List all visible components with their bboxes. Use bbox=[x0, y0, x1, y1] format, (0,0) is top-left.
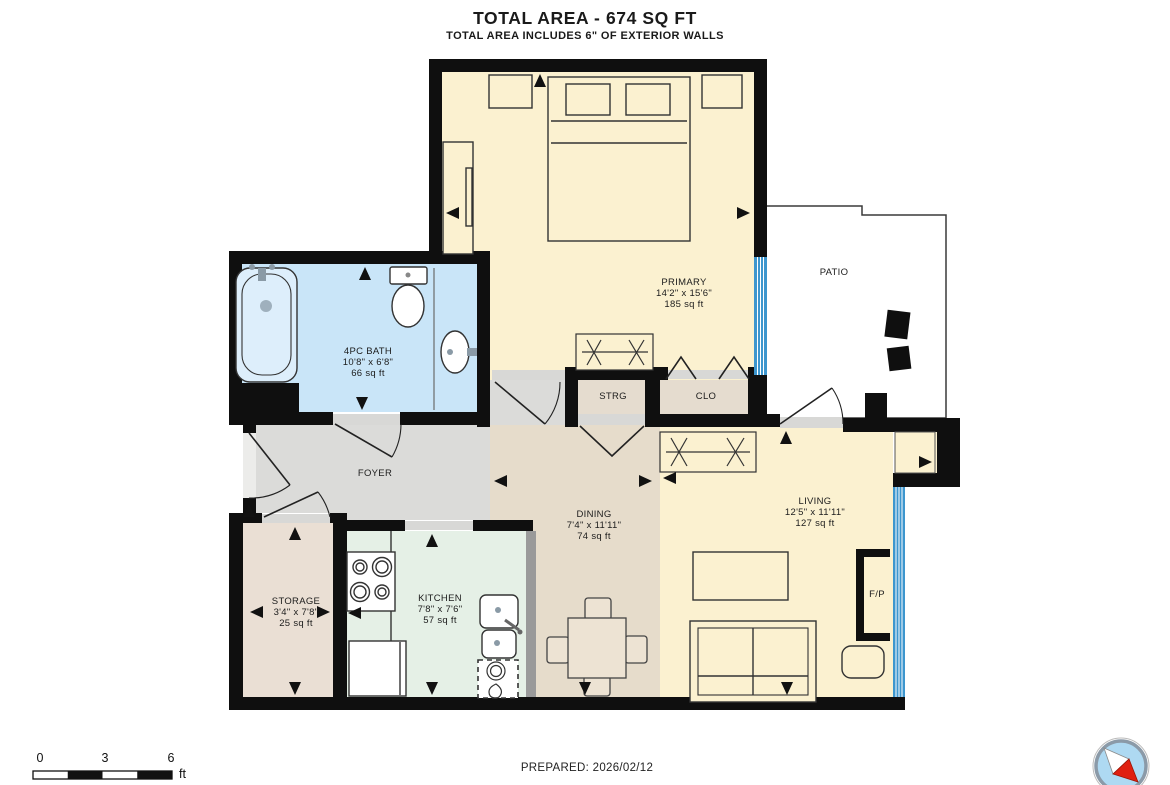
room-label-living: LIVING 12'5" x 11'11" 127 sq ft bbox=[785, 496, 845, 529]
scale-bar-graphic bbox=[33, 771, 172, 779]
kitchen-sink-icon bbox=[480, 595, 523, 658]
room-label-foyer: FOYER bbox=[358, 468, 392, 479]
fridge-icon bbox=[349, 641, 406, 696]
patio-outline bbox=[766, 206, 946, 418]
dishwasher-icon bbox=[478, 660, 518, 698]
room-label-dining: DINING 7'4" x 11'11" 74 sq ft bbox=[567, 509, 622, 542]
room-label-fireplace: F/P bbox=[869, 589, 885, 600]
nightstand-left-icon bbox=[489, 75, 532, 108]
room-label-patio: PATIO bbox=[820, 267, 849, 278]
bed-icon bbox=[548, 77, 690, 241]
scale-tick-0: 0 bbox=[37, 751, 44, 765]
bench-living-icon bbox=[660, 432, 756, 472]
living-alcove-floor bbox=[895, 432, 937, 473]
side-table-icon bbox=[842, 646, 884, 678]
scale-tick-6: 6 bbox=[168, 751, 175, 765]
room-label-clo: CLO bbox=[696, 391, 716, 402]
bench-bedroom-icon bbox=[576, 334, 653, 370]
scale-tick-3: 3 bbox=[102, 751, 109, 765]
coffee-table-icon bbox=[693, 552, 788, 600]
nightstand-right-icon bbox=[702, 75, 742, 108]
page-subtitle: TOTAL AREA INCLUDES 6" OF EXTERIOR WALLS bbox=[446, 30, 724, 42]
scale-unit-label: ft bbox=[179, 767, 186, 781]
room-label-primary: PRIMARY 14'2" x 15'6" 185 sq ft bbox=[656, 277, 712, 310]
compass-icon bbox=[1093, 738, 1149, 785]
page-title: TOTAL AREA - 674 SQ FT bbox=[473, 8, 697, 29]
floor-plan-drawing bbox=[0, 0, 1170, 785]
room-label-kitchen: KITCHEN 7'8" x 7'6" 57 sq ft bbox=[418, 593, 463, 626]
toilet-icon bbox=[390, 267, 427, 327]
prepared-date: PREPARED: 2026/02/12 bbox=[521, 762, 653, 774]
floor-plan-page: TOTAL AREA - 674 SQ FT TOTAL AREA INCLUD… bbox=[0, 0, 1170, 785]
room-label-bath: 4PC BATH 10'8" x 6'8" 66 sq ft bbox=[343, 346, 393, 379]
wardrobe-icon bbox=[443, 142, 473, 254]
room-label-storage: STORAGE 3'4" x 7'8" 25 sq ft bbox=[272, 596, 320, 629]
room-label-strg: STRG bbox=[599, 391, 627, 402]
kitchen-partition-wall bbox=[526, 531, 536, 697]
bathtub-icon bbox=[236, 264, 297, 382]
stove-icon bbox=[347, 552, 395, 611]
sofa-icon bbox=[690, 621, 816, 702]
